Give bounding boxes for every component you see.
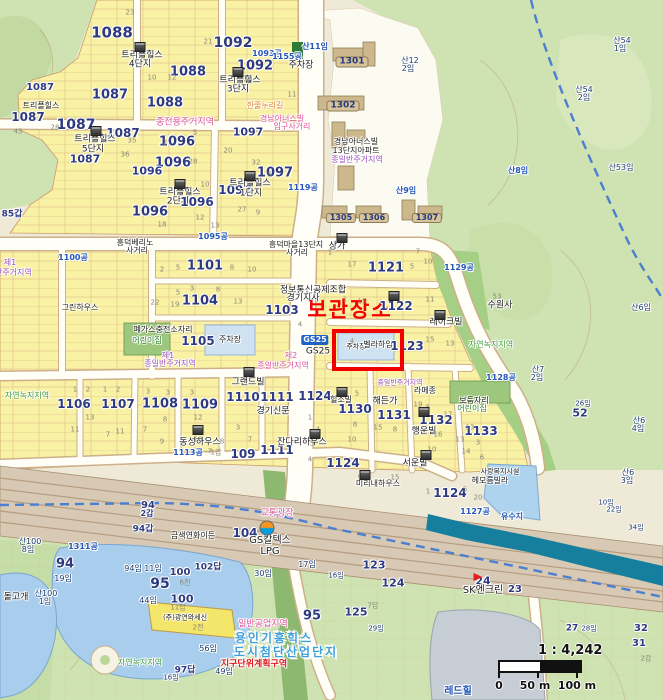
sub-lot-number: 17 (348, 262, 357, 269)
public-lot-number: 산8임 (508, 167, 528, 175)
sub-lot-number: 1 (308, 415, 312, 422)
trail-label: 한줄누리길 (247, 102, 284, 110)
place-name: 수원사 (488, 302, 513, 311)
sub-lot-number: 14 (462, 449, 471, 456)
sub-lot-number: 8 (353, 422, 357, 429)
sub-lot-number: 11 (116, 429, 125, 436)
sub-lot-number: 2 (160, 267, 164, 274)
sub-lot-number: 3 (236, 425, 240, 432)
mountain-lot-number: 30임 (254, 570, 272, 578)
sub-lot-number: 7 (106, 432, 110, 439)
lot-number: 109 (230, 448, 255, 460)
place-name: 해든가 (373, 398, 398, 407)
sub-lot-number: 4 (298, 322, 302, 329)
sub-lot-number: 8 (393, 427, 397, 434)
place-name: 그랜드빌 (231, 379, 264, 388)
building-icon (435, 310, 446, 320)
building-icon (310, 429, 321, 439)
lot-number: 94 (56, 558, 74, 571)
zone-label: 제1 (4, 259, 16, 267)
place-name: 폐가스충전소자리 (134, 326, 193, 334)
public-lot-number: 1127공 (460, 508, 490, 516)
storage-location-marker (332, 329, 404, 371)
sub-lot-number: 10 (348, 437, 357, 444)
sub-lot-number: 23 (126, 10, 135, 17)
sub-lot-number: 13 (211, 223, 220, 230)
mountain-lot-number: 22임 (606, 507, 621, 514)
zone-label: 제2 (285, 352, 297, 360)
gs-caltex-logo-icon (260, 521, 275, 536)
place-name: GS25 (306, 348, 330, 357)
lot-number: 85갑 (2, 211, 23, 220)
lot-number: 1088 (147, 97, 183, 110)
building-icon (389, 291, 400, 301)
mountain-lot-number: 2임 (531, 374, 543, 382)
sub-lot-number: 53 (493, 294, 502, 301)
lot-number: 1087 (70, 154, 101, 165)
building-icon (245, 171, 256, 181)
facility-label: 어린이집 (132, 337, 161, 345)
sub-lot-number: 13 (446, 341, 455, 348)
mountain-lot-number: 3임 (621, 477, 633, 485)
building-icon (91, 126, 102, 136)
sub-lot-number: 12 (194, 415, 203, 422)
sub-lot-number: 8 (216, 287, 220, 294)
sub-lot-number: 3 (190, 390, 194, 397)
public-lot-number: 1129공 (444, 264, 474, 272)
zone-label: 종일반주거지역 (257, 362, 309, 370)
mountain-lot-number: 16임 (328, 573, 343, 580)
sub-lot-number: 5 (193, 130, 197, 137)
sub-lot-number: 11답 (170, 605, 185, 612)
sub-lot-number: 15 (426, 337, 435, 344)
scale-tick-50: 50 m (520, 679, 551, 692)
sub-lot-number: 2 (163, 140, 167, 147)
lot-number: 1105 (181, 335, 214, 347)
mountain-lot-number: 56임 (199, 645, 217, 653)
scale-bar: 1 : 4,242 0 50 m 100 m (480, 641, 660, 693)
lot-number: 1103 (265, 304, 298, 316)
building-icon (337, 387, 348, 397)
place-name: SK엔크린 (463, 586, 504, 596)
sub-lot-number: 5 (176, 290, 180, 297)
lot-number: 100 (170, 568, 191, 578)
public-lot-number: 산11임 (302, 43, 328, 51)
sub-lot-number: 20 (224, 148, 233, 155)
scale-tick-0: 0 (495, 679, 503, 692)
sub-lot-number: 8 (230, 265, 234, 272)
place-name: 주차장 (219, 336, 241, 344)
sub-lot-number: 15 (358, 299, 367, 306)
place-name: 트리플힐스 (74, 136, 115, 145)
sub-lot-number: 5 (410, 264, 414, 271)
sub-lot-number: 18 (158, 222, 167, 229)
scale-ratio: 1 : 4,242 (538, 643, 602, 658)
mountain-lot-number: 산53임 (609, 164, 634, 172)
lot-number: 1088 (91, 26, 133, 41)
sub-lot-number: 13 (466, 425, 475, 432)
zone-label: 종전용주거지역 (156, 119, 214, 128)
public-lot-number: 유수지 (501, 513, 523, 521)
sub-lot-number: 11 (71, 427, 80, 434)
building-number-plate: 1307 (412, 213, 442, 223)
public-lot-number: 1113공 (173, 449, 203, 457)
sub-lot-number: 13 (234, 299, 243, 306)
lot-number: 1131 (377, 409, 410, 421)
lot-number: 1087 (26, 83, 54, 93)
sub-lot-number: 7 (208, 449, 212, 456)
public-lot-number: 레드힐 (444, 687, 472, 697)
building-icon (193, 425, 204, 435)
sub-lot-number: 2 (86, 387, 90, 394)
zone-label: 자연녹지지역 (5, 392, 49, 400)
place-name: 사거리 (286, 249, 308, 257)
sub-lot-number: 9 (160, 439, 164, 446)
sub-lot-number: 3 (476, 440, 480, 447)
lot-number: 1108 (142, 398, 178, 411)
sub-lot-number: 36 (121, 152, 130, 159)
sub-lot-number: 1 (73, 387, 77, 394)
sub-lot-number: 2전 (193, 625, 204, 632)
sub-lot-number: 27 (238, 207, 247, 214)
sub-lot-number: 5 (355, 391, 359, 398)
sub-lot-number: 16 (434, 432, 443, 439)
sub-lot-number: 1 (328, 250, 332, 257)
mountain-lot-number: 산6임 (631, 304, 651, 312)
sub-lot-number: 11 (426, 297, 435, 304)
lot-number: 1087 (11, 111, 44, 123)
lot-number: 1110 (226, 391, 259, 403)
sub-lot-number: 3 (166, 390, 170, 397)
lot-number: 1106 (57, 398, 90, 410)
sub-lot-number: 3 (190, 286, 194, 293)
lot-number: 1101 (187, 260, 223, 273)
gs25-logo: GS25 (301, 335, 328, 345)
building-icon (337, 233, 348, 243)
zone-label: 종일반주거지역 (331, 156, 383, 164)
place-name: 주차장 (289, 62, 314, 71)
public-lot-number: 1128공 (486, 374, 516, 382)
lot-number: 32 (634, 624, 648, 634)
place-name: 경기신문 (256, 408, 289, 417)
lot-number: 1092 (214, 36, 253, 50)
building-number-plate: 1301 (335, 57, 368, 68)
sub-lot-number: 28 (51, 125, 60, 132)
lot-number: 23 (508, 585, 522, 595)
sub-lot-number: 32 (252, 160, 261, 167)
mountain-lot-number: 49임 (215, 668, 233, 676)
mountain-lot-number: 16임 (163, 675, 178, 682)
lot-number: 1087 (92, 89, 128, 102)
lot-number: 102답 (194, 564, 221, 573)
place-name: 1단지 (240, 190, 262, 199)
place-name: 라메종 (414, 387, 436, 395)
building-number-plate: 1302 (326, 101, 359, 112)
sub-lot-number: 20 (474, 495, 483, 502)
mountain-lot-number: 2임 (402, 65, 414, 73)
lot-number: 1096 (132, 206, 168, 219)
lot-number: 1130 (338, 403, 371, 415)
lot-number: 1124 (326, 457, 359, 469)
lot-number: 1122 (379, 300, 412, 312)
lot-number: 1124 (298, 390, 331, 402)
place-name: 헤모름빌라 (472, 477, 509, 485)
sub-lot-number: 6전 (180, 580, 191, 587)
place-name: 13단지아파트 (333, 147, 380, 155)
public-lot-number: 1119공 (288, 184, 318, 192)
sub-lot-number: 7 (416, 249, 420, 256)
sub-lot-number: 7 (248, 437, 252, 444)
sub-lot-number: 13 (456, 437, 465, 444)
industrial-complex-label: 도시첨단산업단지 (234, 646, 338, 658)
facility-label: 어린이집 (457, 405, 486, 413)
place-name: 사랑복지시설 (481, 469, 520, 476)
sk-flag-icon (474, 573, 483, 581)
building-icon (233, 67, 244, 77)
sub-lot-number: 21 (204, 39, 213, 46)
sub-lot-number: 5 (463, 487, 467, 494)
place-name: 트리플힐스 (23, 102, 60, 110)
place-name: 잔다리하우스 (277, 439, 327, 448)
sub-lot-number: 2 (116, 387, 120, 394)
lot-number: 94갑 (133, 526, 154, 535)
sub-lot-number: 5 (268, 172, 272, 179)
place-name: 경남아너스빌 (334, 138, 378, 146)
sub-lot-number: 13 (86, 415, 95, 422)
zone-label: 교통광장 (260, 510, 293, 519)
lot-number: 52 (572, 408, 587, 419)
lot-number: 95 (303, 610, 321, 623)
public-lot-number: 1100공 (58, 254, 88, 262)
public-lot-number: 1311공 (68, 543, 98, 551)
place-name: 그린하우스 (62, 304, 99, 312)
place-name: 돌고개 (4, 594, 29, 603)
sub-lot-number: 35 (128, 138, 137, 145)
lot-number: 1111 (260, 391, 293, 403)
sub-lot-number: 1 (343, 297, 347, 304)
sub-lot-number: 17 (444, 412, 453, 419)
sub-lot-number: 15 (391, 475, 400, 482)
mountain-lot-number: 4임 (632, 425, 644, 433)
industrial-complex-label: 용인기흥힉스 (235, 632, 313, 644)
lot-number: 123 (363, 560, 386, 571)
sub-lot-number: 1 (426, 489, 430, 496)
place-name: 3단지 (227, 86, 249, 95)
mountain-lot-number: 19임 (54, 575, 72, 583)
public-lot-number: 산9임 (396, 187, 416, 195)
sub-lot-number: 10 (201, 182, 210, 189)
lot-number: 1096 (180, 196, 213, 208)
building-icon (135, 42, 146, 52)
zone-label: 종일반주거지역 (0, 269, 32, 277)
place-name: 사거리 (126, 247, 148, 255)
place-name: GS칼텍스 (249, 536, 291, 546)
sub-lot-number: 45 (14, 129, 23, 136)
sub-lot-number: 19 (171, 302, 180, 309)
lot-number: 95 (150, 577, 169, 591)
mountain-lot-number: 1임 (614, 45, 626, 53)
sub-lot-number: 10 (194, 437, 203, 444)
lot-number: 1104 (182, 295, 218, 308)
sub-lot-number: 10 (248, 267, 257, 274)
public-lot-number: 1095공 (198, 233, 228, 241)
lot-number: 2갑 (141, 510, 154, 518)
lot-number: 1124 (433, 487, 466, 499)
mountain-lot-number: 2임 (578, 94, 590, 102)
lot-number: 1107 (101, 398, 134, 410)
mountain-lot-number: 8임 (22, 546, 34, 554)
zone-label: 입구사거리 (274, 123, 311, 131)
building-icon (421, 450, 432, 460)
mountain-lot-number: 94임 (124, 565, 142, 573)
map-canvas[interactable]: 1088트리플힐스4단지10921093공1092트리플힐스3단지1155공주차… (0, 0, 663, 700)
zone-label: 종일반주거지역 (144, 360, 196, 368)
mountain-lot-number: 11임 (144, 565, 162, 573)
building-number-plate: 1306 (359, 213, 389, 223)
sub-lot-number: 6 (480, 455, 484, 462)
sub-lot-number: 12 (168, 75, 177, 82)
zone-label: 자연녹지지역 (469, 341, 513, 349)
scale-tick-100: 100 m (558, 679, 596, 692)
sub-lot-number: 4 (308, 457, 312, 464)
mountain-lot-number: 17임 (298, 561, 316, 569)
lot-number: 27 (566, 625, 579, 634)
sub-lot-number: 3 (146, 389, 150, 396)
sub-lot-number: 28 (244, 77, 253, 84)
zone-label: 일반공업지역 (238, 621, 288, 630)
scale-bar-graphic (498, 660, 582, 673)
mountain-lot-number: 34임 (628, 525, 643, 532)
sub-lot-number: 11 (288, 92, 297, 99)
sub-lot-number: 12 (196, 215, 205, 222)
sub-lot-number: 28 (189, 159, 198, 166)
lot-number: 1096 (132, 166, 163, 177)
sub-lot-number: 5 (310, 441, 314, 448)
sub-lot-number: 7 (143, 427, 147, 434)
mountain-lot-number: 1임 (39, 598, 51, 606)
sub-lot-number: 7답 (368, 603, 379, 610)
building-icon (175, 179, 186, 189)
lot-number: 1097 (233, 127, 264, 138)
building-icon (360, 470, 371, 480)
mountain-lot-number: 28임 (581, 626, 596, 633)
sub-lot-number: 5 (176, 265, 180, 272)
sub-lot-number: 10 (424, 259, 433, 266)
lot-number: 125 (345, 607, 368, 618)
lot-number: 1109 (182, 399, 218, 412)
sub-lot-number: 1 (103, 387, 107, 394)
building-number-plate: 1305 (326, 213, 356, 223)
building-icon (419, 407, 430, 417)
place-name: 금색연화이든 (171, 532, 215, 540)
place-name: LPG (260, 547, 279, 557)
mountain-lot-number: 29임 (368, 626, 383, 633)
lot-number: 124 (382, 578, 405, 589)
sub-lot-number: 22 (151, 300, 160, 307)
sub-lot-number: 8 (220, 439, 224, 446)
sub-lot-number: 10 (148, 75, 157, 82)
sub-lot-number: 8 (163, 417, 167, 424)
lot-number: 1121 (368, 262, 404, 275)
mountain-lot-number: 44임 (139, 597, 157, 605)
building-icon (244, 367, 255, 377)
zone-label: 자연녹지지역 (118, 659, 162, 667)
place-name: (주)광연와세신 (163, 615, 207, 622)
place-name: 서운빌 (403, 460, 428, 469)
place-name: 4단지 (129, 61, 151, 70)
sub-lot-number: 9 (256, 210, 260, 217)
sub-lot-number: 15 (374, 425, 383, 432)
